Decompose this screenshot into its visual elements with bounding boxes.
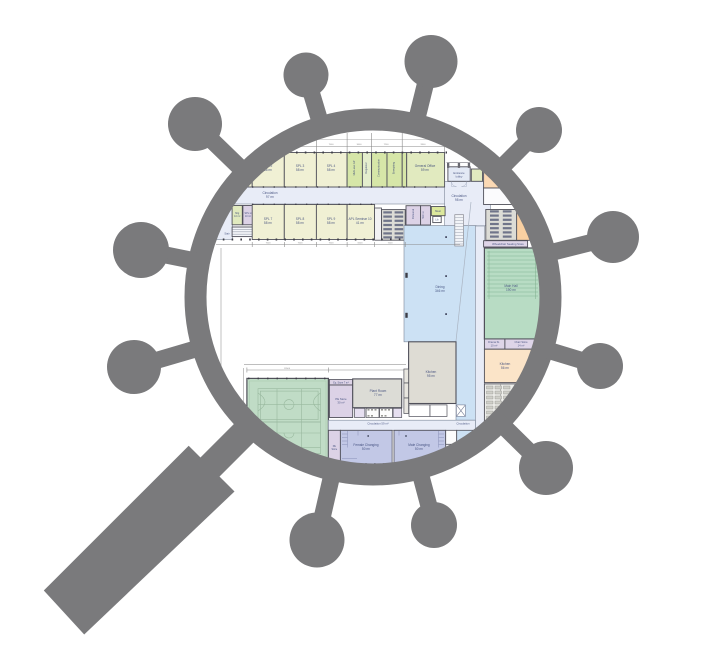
svg-text:346 m²: 346 m² xyxy=(435,289,445,293)
svg-text:lobby: lobby xyxy=(456,175,463,179)
svg-text:50 m²: 50 m² xyxy=(362,447,370,451)
svg-text:7500: 7500 xyxy=(298,242,304,244)
svg-text:3600: 3600 xyxy=(357,144,363,146)
svg-text:Stair: Stair xyxy=(224,232,229,236)
svg-text:Wheelchair Seating Store: Wheelchair Seating Store xyxy=(492,242,524,246)
svg-text:Store: Store xyxy=(331,448,337,451)
svg-text:58 m²: 58 m² xyxy=(327,168,335,172)
svg-text:97 m²: 97 m² xyxy=(266,195,274,199)
svg-text:56 m²: 56 m² xyxy=(501,366,509,370)
svg-text:30 m²: 30 m² xyxy=(337,401,344,405)
svg-text:Multi-use GP: Multi-use GP xyxy=(352,160,356,175)
svg-text:Communication: Communication xyxy=(377,158,381,177)
svg-text:Energising: Energising xyxy=(392,161,396,174)
svg-text:58 m²: 58 m² xyxy=(296,168,304,172)
svg-text:7500: 7500 xyxy=(329,242,335,244)
svg-text:50 m²: 50 m² xyxy=(415,447,423,451)
svg-text:Drama St.: Drama St. xyxy=(488,340,500,344)
svg-text:Circulation: Circulation xyxy=(456,422,470,426)
svg-text:58 m²: 58 m² xyxy=(264,221,272,225)
svg-text:9900: 9900 xyxy=(421,144,427,146)
svg-text:10 m²: 10 m² xyxy=(491,344,498,348)
svg-text:58 m²: 58 m² xyxy=(296,221,304,225)
svg-text:Meet: Meet xyxy=(435,209,441,213)
svg-text:98 m²: 98 m² xyxy=(455,198,463,202)
svg-text:6500: 6500 xyxy=(358,242,364,244)
svg-text:7200: 7200 xyxy=(384,144,390,146)
svg-text:10 m²: 10 m² xyxy=(245,215,251,218)
svg-text:58 m²: 58 m² xyxy=(327,221,335,225)
svg-text:41 m²: 41 m² xyxy=(356,221,364,225)
svg-text:77 m²: 77 m² xyxy=(374,393,382,397)
svg-text:Circulation 59 m²: Circulation 59 m² xyxy=(367,422,388,426)
svg-text:14 m²: 14 m² xyxy=(518,344,525,348)
svg-text:190 m²: 190 m² xyxy=(506,288,516,292)
svg-text:Personal: Personal xyxy=(411,208,415,219)
svg-text:7500: 7500 xyxy=(266,242,272,244)
svg-text:59 m²: 59 m² xyxy=(421,168,429,172)
svg-text:Eq. Store 7 m²: Eq. Store 7 m² xyxy=(333,382,349,385)
svg-text:7500: 7500 xyxy=(329,144,335,146)
svg-text:10 m²: 10 m² xyxy=(234,215,240,218)
svg-text:95 m²: 95 m² xyxy=(427,374,435,378)
svg-text:Chair Store: Chair Store xyxy=(514,340,528,344)
svg-text:Regulator: Regulator xyxy=(364,162,368,173)
svg-text:19500: 19500 xyxy=(284,368,291,370)
svg-text:WC st: WC st xyxy=(421,211,425,218)
svg-text:7200: 7200 xyxy=(388,242,394,244)
